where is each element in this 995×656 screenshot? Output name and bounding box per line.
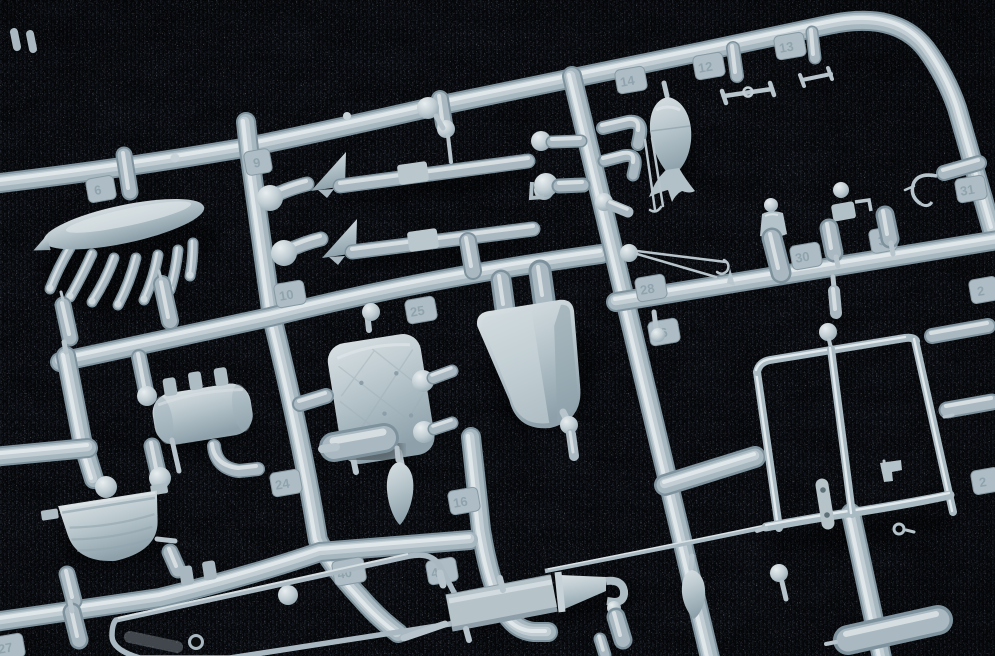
svg-text:13: 13 xyxy=(778,39,795,56)
svg-text:16: 16 xyxy=(452,494,469,511)
svg-text:31: 31 xyxy=(959,182,976,199)
svg-text:25: 25 xyxy=(409,303,426,320)
svg-text:12: 12 xyxy=(697,59,714,76)
svg-text:10: 10 xyxy=(278,287,295,304)
svg-text:28: 28 xyxy=(639,281,656,298)
svg-text:30: 30 xyxy=(794,249,811,266)
